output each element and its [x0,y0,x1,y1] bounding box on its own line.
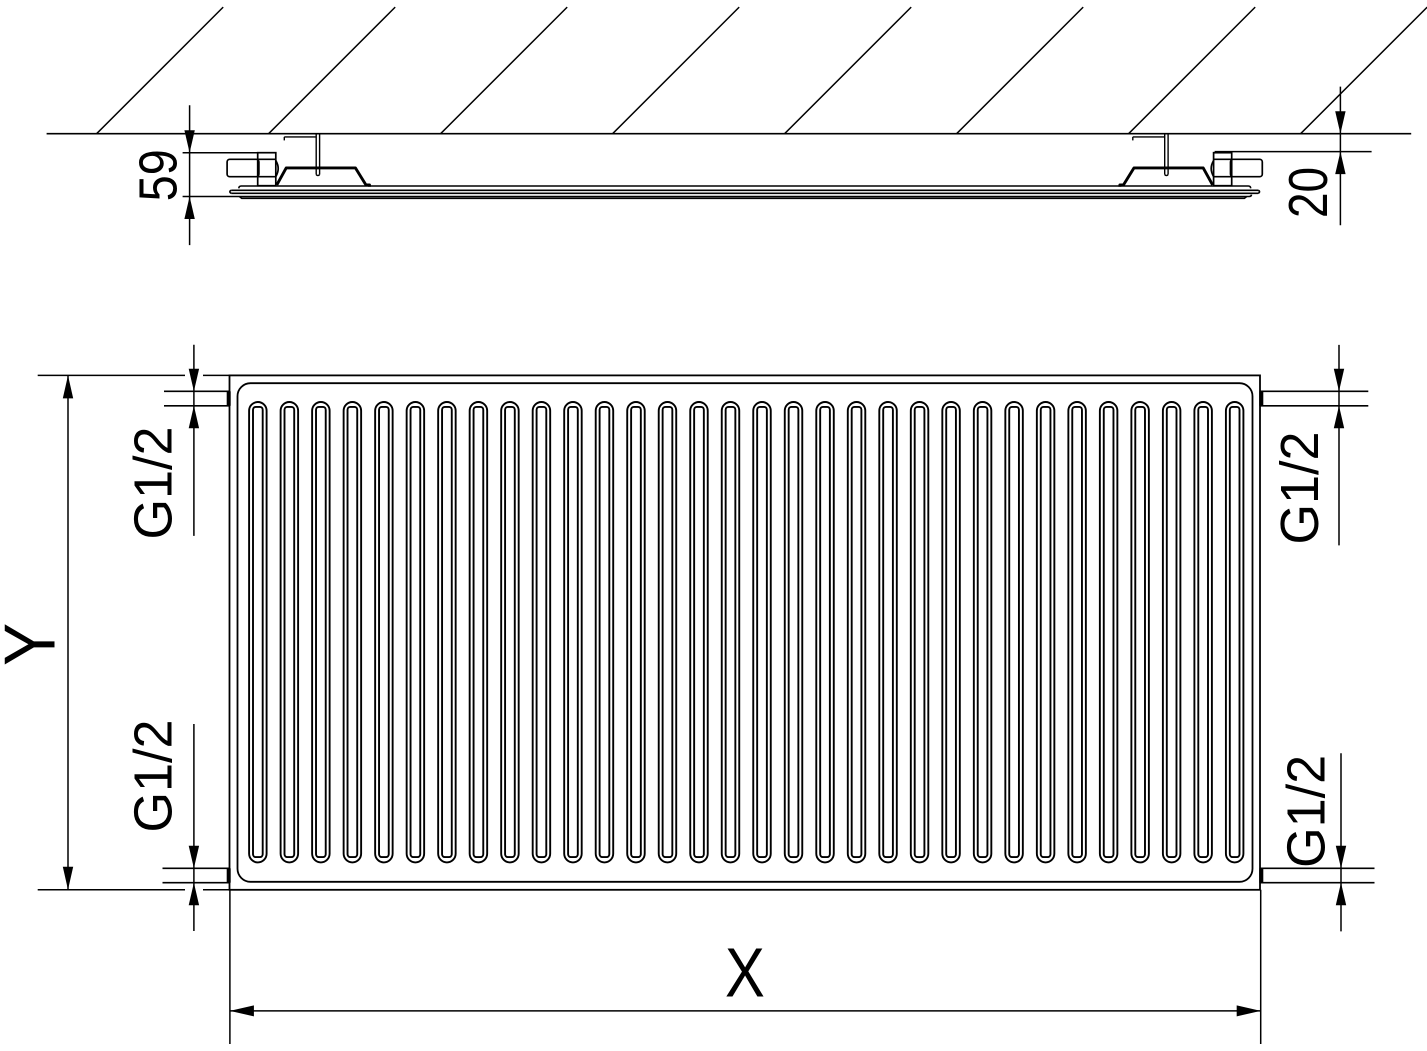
svg-text:20: 20 [1278,167,1339,218]
svg-text:X: X [725,933,765,1011]
svg-text:Y: Y [0,623,70,666]
svg-text:G1/2: G1/2 [123,427,183,540]
svg-text:G1/2: G1/2 [1270,432,1330,545]
svg-text:59: 59 [129,149,189,201]
svg-text:G1/2: G1/2 [123,720,183,833]
svg-text:G1/2: G1/2 [1277,755,1337,868]
